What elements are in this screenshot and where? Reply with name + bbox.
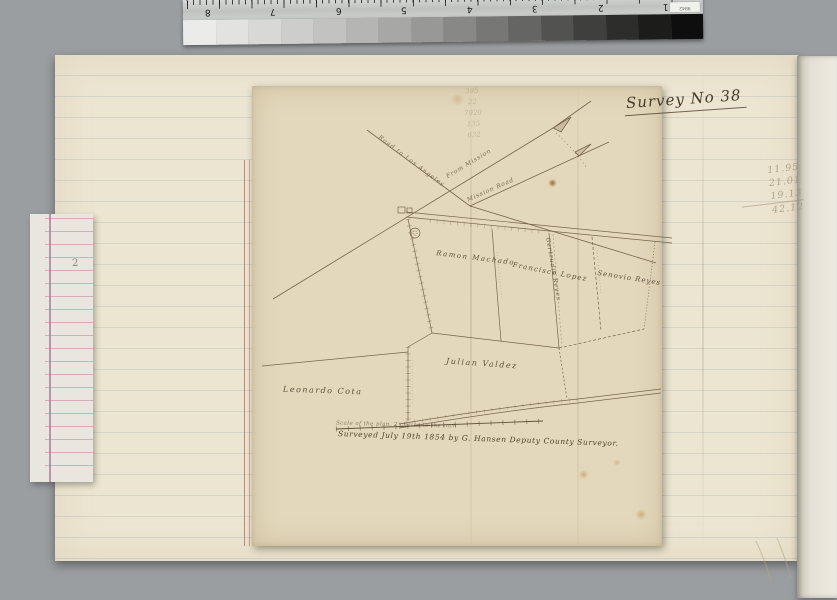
survey-map-sheet bbox=[252, 86, 662, 546]
ruler-number: 2 bbox=[598, 2, 604, 12]
wedge-step bbox=[670, 14, 703, 39]
calibration-assembly: 87654321 9842 bbox=[183, 0, 704, 47]
wedge-step bbox=[345, 18, 378, 43]
ledger-page-number: 2 bbox=[72, 258, 78, 269]
pencil-notes-top: 395227920135632 bbox=[437, 84, 510, 143]
wedge-step bbox=[508, 16, 541, 41]
ruler-number: 8 bbox=[205, 7, 211, 17]
pencil-notes-right: 11.9521.0119.1342.12 bbox=[737, 160, 805, 220]
wedge-step bbox=[280, 19, 313, 44]
grayscale-wedge bbox=[183, 14, 703, 45]
ledger-pink-rules bbox=[45, 218, 93, 478]
wedge-step bbox=[215, 19, 248, 44]
foxing-stain bbox=[635, 509, 647, 520]
ledger-margin-line bbox=[244, 160, 250, 546]
wedge-step bbox=[605, 15, 638, 40]
wedge-step bbox=[540, 15, 573, 40]
wedge-step bbox=[638, 14, 671, 39]
wedge-step bbox=[443, 17, 476, 42]
ink-stain bbox=[548, 179, 557, 187]
wedge-step bbox=[410, 17, 443, 42]
wedge-step bbox=[313, 18, 346, 43]
ruler-number: 3 bbox=[532, 3, 538, 13]
ruler-number: 6 bbox=[336, 5, 342, 15]
wedge-step bbox=[378, 17, 411, 42]
wedge-step bbox=[475, 16, 508, 41]
wedge-step bbox=[183, 20, 216, 45]
wedge-step bbox=[248, 19, 281, 44]
right-page-edge bbox=[797, 56, 837, 598]
ruler-label-tag: 9842 bbox=[670, 2, 700, 12]
wedge-step bbox=[573, 15, 606, 40]
foxing-stain bbox=[578, 470, 589, 479]
ruler-number: 5 bbox=[401, 4, 407, 14]
foxing-stain bbox=[613, 459, 621, 466]
ruler-number: 1 bbox=[663, 1, 669, 11]
ruler-number: 4 bbox=[467, 4, 473, 14]
ledger-strip: 2 bbox=[30, 214, 93, 482]
album-page-crease bbox=[702, 57, 704, 559]
ruler-number: 7 bbox=[270, 6, 276, 16]
